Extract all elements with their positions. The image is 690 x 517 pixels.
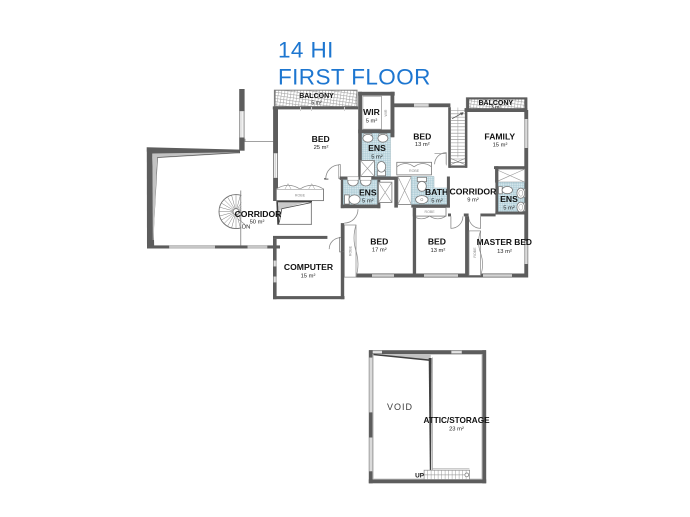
svg-text:FIRST FLOOR: FIRST FLOOR [278, 65, 431, 90]
svg-text:BED: BED [413, 131, 431, 141]
svg-text:15 m²: 15 m² [301, 274, 316, 280]
svg-text:ENS: ENS [500, 194, 518, 204]
svg-text:ROBE: ROBE [425, 210, 436, 214]
svg-text:BATH: BATH [425, 187, 448, 197]
svg-text:13 m²: 13 m² [497, 249, 512, 255]
svg-text:15 m²: 15 m² [493, 143, 508, 149]
svg-text:MASTER BED: MASTER BED [477, 237, 532, 247]
svg-text:ROBE: ROBE [348, 245, 352, 256]
svg-text:WIR: WIR [363, 107, 380, 117]
svg-text:5 m²: 5 m² [311, 101, 322, 107]
svg-text:50 m²: 50 m² [250, 219, 265, 225]
svg-text:14 HI: 14 HI [278, 38, 334, 63]
svg-text:13 m²: 13 m² [430, 248, 445, 254]
svg-text:25 m²: 25 m² [314, 145, 329, 151]
svg-text:ENS: ENS [368, 143, 386, 153]
svg-text:5 m²: 5 m² [503, 205, 515, 211]
svg-text:5 m²: 5 m² [371, 154, 383, 160]
svg-text:VOID: VOID [387, 402, 413, 412]
svg-text:ATTIC/STORAGE: ATTIC/STORAGE [423, 416, 490, 425]
svg-text:CORRIDOR: CORRIDOR [235, 209, 283, 219]
svg-text:BED: BED [428, 236, 446, 246]
svg-text:COMPUTER: COMPUTER [284, 262, 334, 272]
svg-text:5 m²: 5 m² [362, 198, 374, 204]
svg-text:DN: DN [242, 225, 250, 231]
svg-text:17 m²: 17 m² [372, 248, 387, 254]
svg-text:BED: BED [312, 134, 330, 144]
svg-text:WIR: WIR [384, 109, 388, 116]
svg-text:13 m²: 13 m² [415, 142, 430, 148]
svg-text:5 m²: 5 m² [366, 118, 378, 124]
svg-text:FAMILY: FAMILY [484, 132, 515, 142]
svg-text:ENS: ENS [359, 187, 377, 197]
svg-text:CORRIDOR: CORRIDOR [450, 186, 498, 196]
svg-text:ROBE: ROBE [473, 247, 477, 258]
svg-text:ROBE: ROBE [409, 169, 420, 173]
svg-text:BED: BED [370, 236, 388, 246]
svg-text:UP: UP [415, 473, 425, 480]
svg-text:ROBE: ROBE [295, 194, 306, 198]
svg-text:5 m²: 5 m² [431, 198, 443, 204]
svg-text:BALCONY: BALCONY [299, 93, 334, 100]
svg-text:23 m²: 23 m² [449, 426, 464, 432]
svg-text:9 m²: 9 m² [467, 198, 479, 204]
